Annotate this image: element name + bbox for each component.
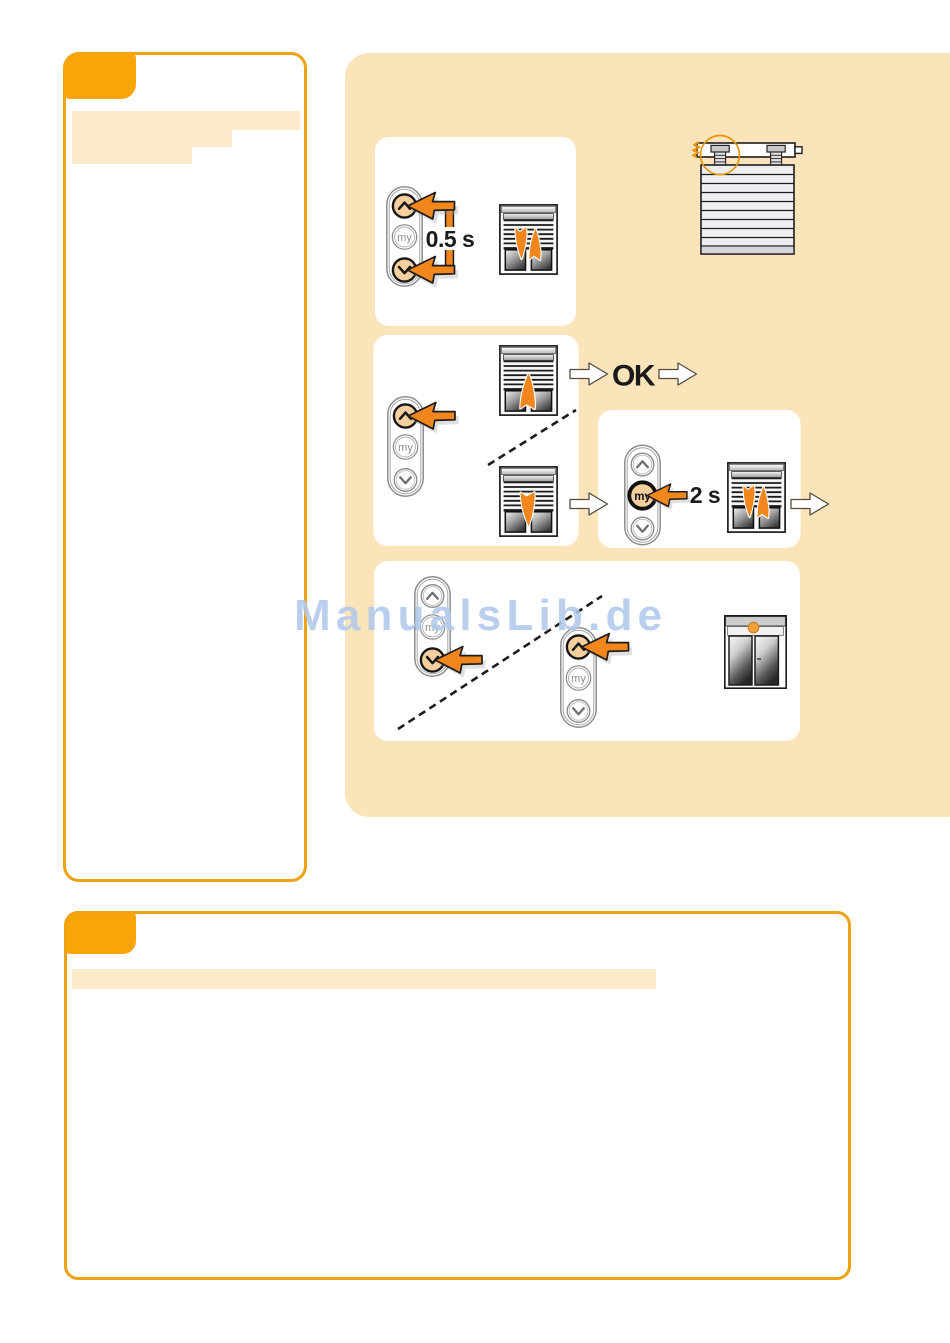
svg-text:OK: OK <box>612 360 656 393</box>
svg-text:ManualsLib.de: ManualsLib.de <box>294 591 667 640</box>
svg-text:2 s: 2 s <box>690 482 720 508</box>
svg-text:0.5 s: 0.5 s <box>426 226 475 252</box>
